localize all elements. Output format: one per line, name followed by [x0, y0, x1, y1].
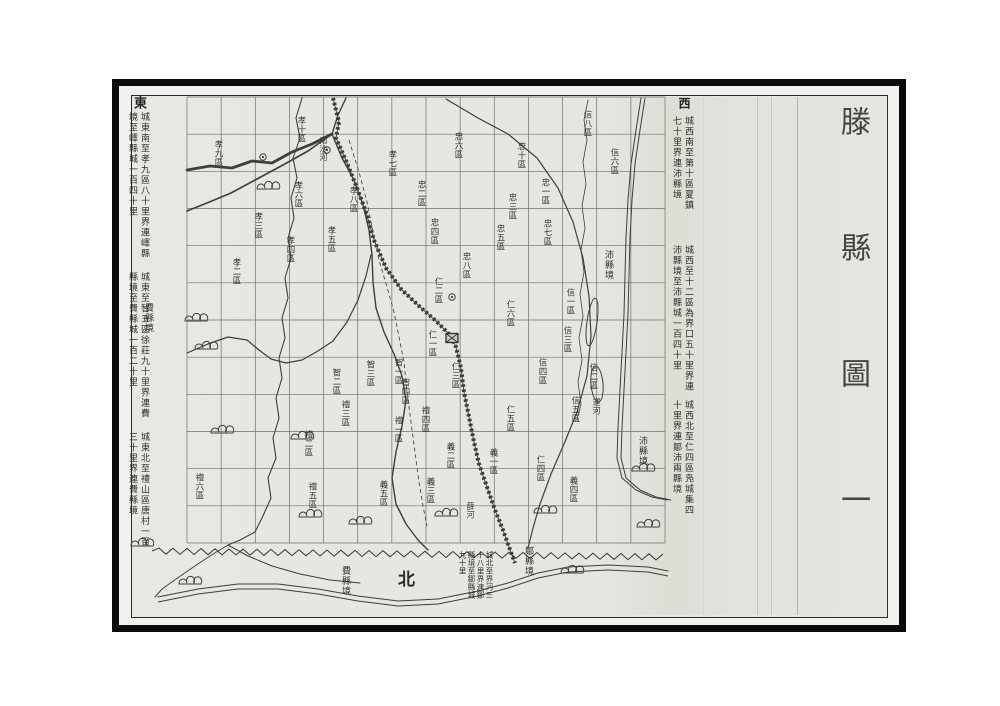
boundary-label: 費縣境	[341, 566, 350, 596]
district-label: 孝六區	[294, 181, 303, 208]
boundary-label: 沛縣境	[604, 250, 613, 280]
district-label: 忠四區	[430, 218, 439, 245]
district-label: 忠六區	[454, 132, 463, 159]
district-label: 忠三區	[508, 193, 517, 220]
district-label: 信五區	[571, 396, 580, 423]
district-label: 禮五區	[308, 482, 317, 509]
west-margin-note-2: 城西至十二區為界口五十里界連沛縣境至沛縣城一百四十里	[671, 245, 695, 395]
district-label: 仁二區	[434, 277, 443, 304]
district-label: 禮六區	[195, 473, 204, 500]
mountain-icon	[349, 516, 372, 524]
mountain-icon	[299, 509, 322, 517]
boundary-label: 沛縣境	[638, 436, 647, 466]
district-label: 信三區	[563, 326, 572, 353]
place-label: 運河	[592, 398, 601, 415]
district-label: 信六區	[610, 148, 619, 175]
district-label: 義五區	[379, 480, 388, 507]
district-label: 忠八區	[462, 252, 471, 279]
mountain-icon	[257, 181, 280, 189]
district-label: 禮四區	[421, 406, 430, 433]
map-title: 滕縣圖一	[830, 106, 874, 610]
river-line-lake-shore	[577, 100, 588, 420]
district-label: 孝九區	[214, 140, 223, 167]
district-label: 仁一區	[428, 330, 437, 357]
east-margin-note-2: 城東至智五區徐莊九十里界連費縣境至費縣城一百二十里	[127, 272, 151, 422]
district-label: 孝二區	[232, 258, 241, 285]
district-label: 忠一區	[541, 178, 550, 205]
west-margin-note-3: 城西北至仁四區凫城集四十里界連鄒沛兩縣境	[671, 400, 695, 522]
district-label: 忠七區	[543, 219, 552, 246]
district-label: 義一區	[489, 448, 498, 475]
district-label: 忠五區	[496, 224, 505, 251]
north-label: 北	[398, 565, 415, 590]
place-label: 薛河	[466, 502, 475, 519]
west-margin-note-1: 城西南至第十區夏鎮七十里界連沛縣境	[671, 116, 695, 218]
mountain-icon	[179, 576, 202, 584]
district-label: 智二區	[332, 368, 341, 395]
district-label: 仁四區	[536, 455, 545, 482]
district-label: 智四區	[401, 378, 410, 405]
river-line-dark-top-river	[187, 134, 332, 170]
rivers-layer	[152, 98, 671, 606]
river-line-mid-horizontal-river	[187, 255, 371, 363]
district-label: 孝八區	[349, 186, 358, 213]
scanned-page: 孝十區孝九區孝六區孝三區孝四區孝八區孝七區孝五區孝二區忠六區忠十區忠二區忠一區忠…	[0, 0, 1000, 706]
district-label: 信二區	[589, 363, 598, 390]
district-label: 孝三區	[254, 212, 263, 239]
district-label: 智三區	[366, 360, 375, 387]
district-label: 禮二區	[304, 430, 313, 457]
district-label: 仁五區	[506, 405, 515, 432]
district-label: 孝五區	[327, 226, 336, 253]
district-label: 孝四區	[286, 236, 295, 263]
county-city-icon	[446, 334, 458, 343]
district-label: 禮一區	[394, 416, 403, 443]
railway-line	[333, 98, 515, 563]
west-margin-header: 西	[676, 97, 693, 109]
railway-layer	[333, 98, 515, 563]
district-label: 孝十區	[297, 116, 306, 143]
district-label: 信四區	[538, 358, 547, 385]
mountain-icon	[435, 508, 458, 516]
boundary-label: 鄒縣境	[524, 546, 533, 576]
district-label: 信一區	[566, 288, 575, 315]
east-margin-note-3: 城東北至禮山區唐村一百三十里界連費縣境	[127, 432, 151, 557]
district-label: 仁六區	[506, 300, 515, 327]
district-label: 忠十區	[517, 142, 526, 169]
district-label: 義二區	[446, 442, 455, 469]
oxbow-lake	[584, 298, 601, 347]
district-label: 仁三區	[451, 362, 460, 389]
north-boundary-note: 城北至界河三十八里界連鄒縣境至鄒縣城九十里	[458, 551, 494, 603]
town-circle-icon	[260, 154, 266, 160]
district-label: 義三區	[426, 477, 435, 504]
district-label: 禮三區	[341, 400, 350, 427]
district-label: 孝七區	[388, 150, 397, 177]
mountain-icon	[637, 519, 660, 527]
district-label: 忠二區	[417, 180, 426, 207]
district-label: 信八區	[583, 110, 592, 137]
place-label: 南沙河	[319, 136, 328, 162]
district-label: 義四區	[569, 476, 578, 503]
boundary-zigzag	[152, 548, 663, 560]
town-circle-icon	[449, 294, 455, 300]
east-margin-header: 東	[130, 96, 149, 109]
east-margin-note-1: 城東南至孝九區八十里界連嶧縣境至嶧縣城一百四十里	[127, 112, 151, 262]
